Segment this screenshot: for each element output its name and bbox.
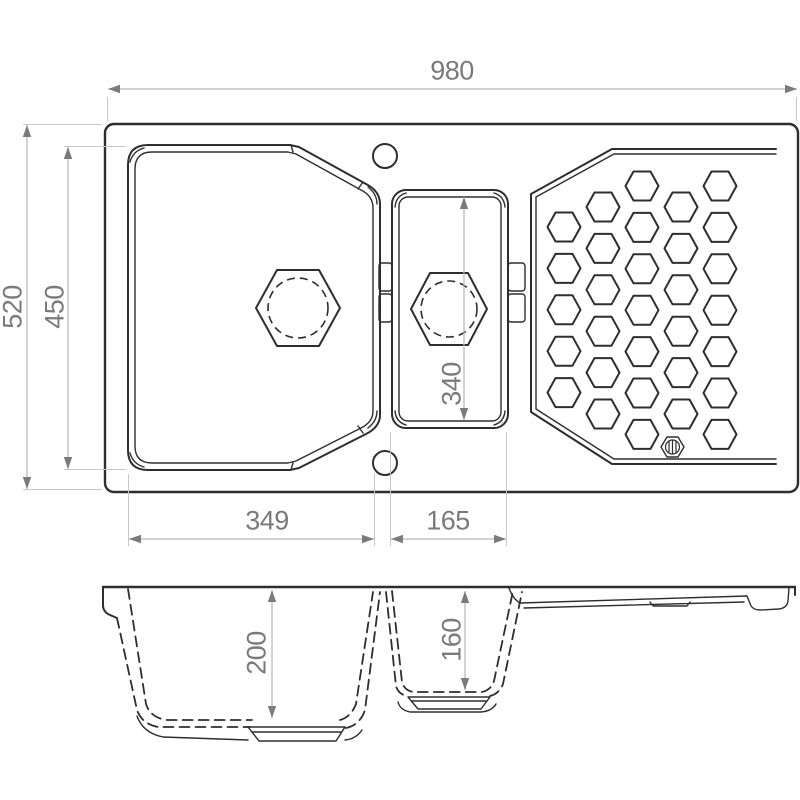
dim-label-main-bowl-plan-depth: 450 — [42, 285, 69, 329]
dim-label-small-bowl-plan-width: 165 — [426, 508, 470, 535]
main-drain-flange — [248, 727, 345, 741]
bowl-link-channels — [379, 263, 525, 322]
drainer-section-surface — [509, 588, 789, 610]
small-drain-hole — [421, 281, 477, 337]
drainer-hole — [626, 254, 659, 283]
top-view — [105, 124, 798, 492]
dim-label-overall-width: 980 — [430, 58, 474, 85]
section-end-profiles — [103, 587, 795, 618]
drainer-hole — [665, 400, 698, 429]
tap-hole-bottom — [373, 451, 397, 475]
drainer-hole — [626, 213, 659, 242]
dim-label-small-bowl-plan-depth: 340 — [439, 362, 466, 406]
drainer-hole — [704, 420, 737, 449]
extension-lines — [23, 97, 797, 546]
drainer-hole — [704, 337, 737, 366]
emblem-bars — [669, 441, 676, 454]
drainer-hole — [704, 172, 737, 201]
drainer-hole — [665, 358, 698, 387]
dim-label-overall-depth: 520 — [0, 285, 27, 329]
dimension-lines — [27, 89, 797, 718]
drainer-hole — [548, 213, 581, 242]
drainer — [531, 149, 776, 464]
small-drain-flange — [408, 697, 490, 709]
honeycomb-pattern — [548, 172, 737, 449]
drainer-hole — [665, 275, 698, 304]
drainer-hole — [587, 358, 620, 387]
dim-label-main-bowl-plan-width: 349 — [245, 508, 289, 535]
drainer-hole — [626, 337, 659, 366]
side-view — [103, 587, 795, 741]
drainer-hole — [665, 317, 698, 346]
drainer-hole — [587, 193, 620, 222]
sink-technical-drawing: 980 520 450 349 165 340 200 160 — [0, 0, 800, 800]
drainer-hole — [587, 317, 620, 346]
drainer-hole — [587, 234, 620, 263]
drainer-hole — [704, 296, 737, 325]
dimensions — [23, 85, 797, 718]
sink-outer-edge — [105, 124, 798, 492]
drainer-hole — [548, 254, 581, 283]
drainer-hole — [626, 172, 659, 201]
drainer-hole — [587, 400, 620, 429]
dimension-arrows — [23, 85, 797, 718]
drainer-hole — [548, 378, 581, 407]
link-channel — [508, 263, 525, 291]
drawing-canvas — [0, 0, 800, 800]
dim-label-main-bowl-depth: 200 — [244, 631, 271, 675]
drainer-hole — [665, 234, 698, 263]
drainer-hole — [704, 213, 737, 242]
drainer-hole — [704, 379, 737, 408]
small-drain-hexagon — [411, 273, 487, 345]
dim-label-small-bowl-depth: 160 — [439, 618, 466, 662]
main-bowl-inner-rim — [135, 152, 373, 463]
drainer-hole — [626, 379, 659, 408]
drainer-hole — [626, 420, 659, 449]
drainer-hole — [626, 296, 659, 325]
drainer-hole — [548, 337, 581, 366]
main-bowl-outer-rim — [128, 145, 380, 470]
drainer-hole — [704, 254, 737, 283]
drainer-hole — [665, 193, 698, 222]
brand-emblem-icon — [661, 437, 684, 457]
main-drain-hole — [268, 278, 328, 338]
link-channel — [508, 294, 525, 322]
drainer-hole — [587, 275, 620, 304]
tap-hole-top — [373, 144, 397, 168]
main-bowl — [128, 145, 380, 470]
drainer-hole — [548, 295, 581, 324]
